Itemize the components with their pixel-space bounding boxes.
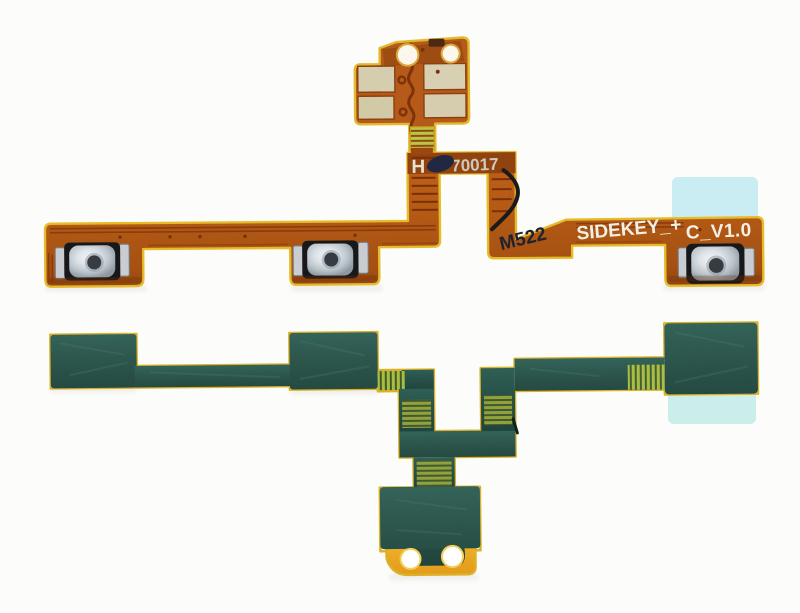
svg-text:C_V1.0: C_V1.0 [685,220,752,244]
svg-text:H: H [411,157,425,178]
svg-text:70017: 70017 [451,155,499,176]
